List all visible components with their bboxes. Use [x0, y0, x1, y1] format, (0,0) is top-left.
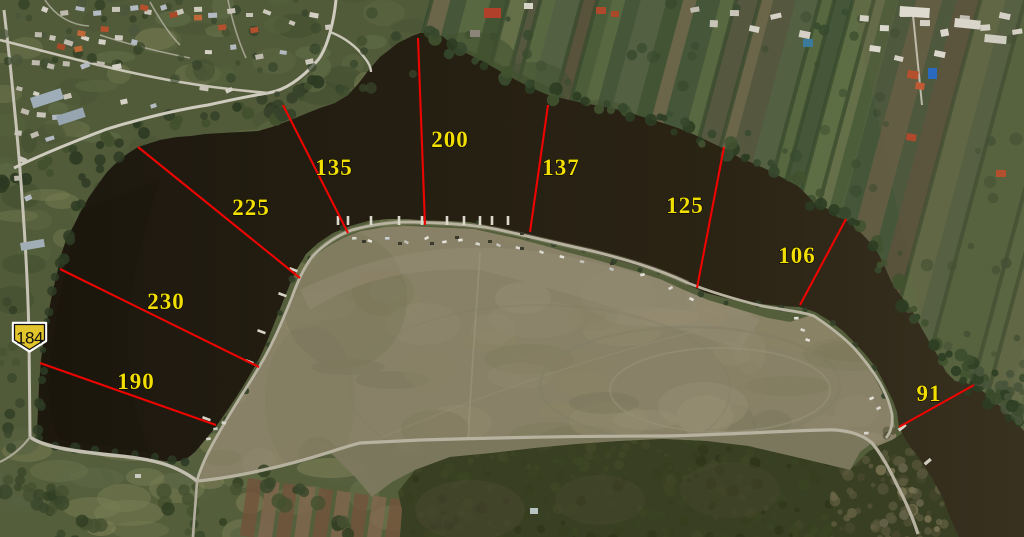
svg-text:125: 125 [666, 193, 704, 218]
svg-text:230: 230 [147, 289, 185, 314]
svg-text:184: 184 [16, 329, 43, 348]
svg-text:225: 225 [232, 195, 270, 220]
svg-text:200: 200 [431, 127, 469, 152]
svg-text:135: 135 [315, 155, 353, 180]
svg-text:106: 106 [778, 243, 816, 268]
svg-text:137: 137 [542, 155, 580, 180]
svg-text:190: 190 [117, 369, 155, 394]
svg-text:91: 91 [917, 381, 942, 406]
